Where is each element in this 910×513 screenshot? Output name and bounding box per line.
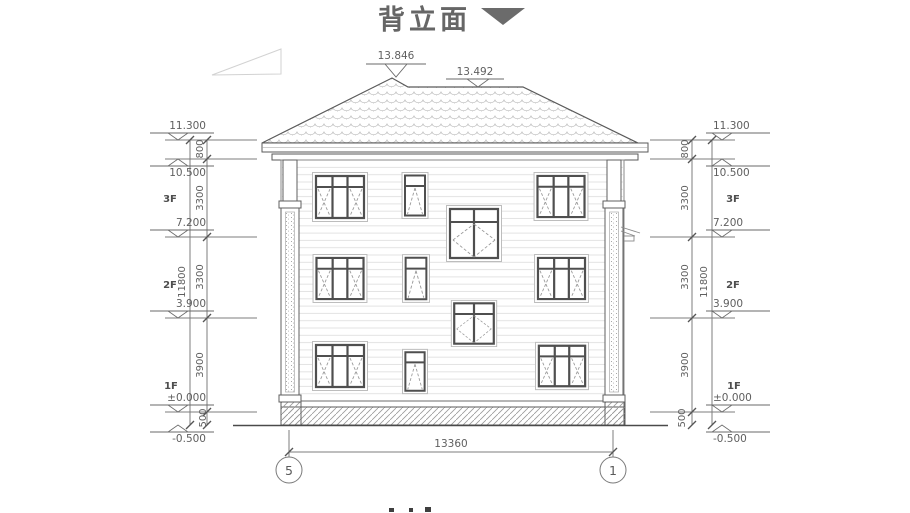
dim-800-right: 800 — [679, 129, 691, 169]
roof-peak-elevation: 13.846 — [366, 50, 426, 62]
elevation-11300-right: 11.300 — [713, 120, 773, 132]
elevation-7200-left: 7.200 — [146, 217, 206, 229]
window-1f-narrow — [402, 349, 427, 393]
window-2f-left — [313, 254, 367, 302]
window-2f-right — [535, 254, 589, 302]
dim-800-left: 800 — [194, 129, 206, 169]
floor-label-1f-left: 1F — [159, 381, 183, 393]
window-3f-left — [313, 173, 368, 222]
grid-bubble-1-label: 1 — [600, 463, 626, 477]
floor-label-3f-left: 3F — [158, 194, 182, 206]
window-3f-right — [534, 172, 588, 220]
title-arrow-icon — [481, 8, 525, 25]
floor-label-3f-right: 3F — [721, 194, 745, 206]
window-stair-upper — [447, 206, 502, 262]
window-2f-narrow — [403, 255, 430, 303]
dim-3300a-right: 3300 — [679, 178, 691, 218]
window-3f-narrow — [402, 173, 428, 219]
dim-13360: 13360 — [421, 438, 481, 450]
dim-11800-left: 11800 — [176, 262, 188, 302]
dim-500-right: 500 — [676, 398, 688, 438]
window-stair-lower — [451, 300, 496, 346]
window-1f-left — [313, 342, 368, 391]
dim-3300b-left: 3300 — [194, 257, 206, 297]
elevation-0000-right: ±0.000 — [713, 392, 773, 404]
dim-3300b-right: 3300 — [679, 257, 691, 297]
dim-3900-right: 3900 — [679, 345, 691, 385]
elevation-10500-right: 10.500 — [713, 167, 773, 179]
dim-11800-right: 11800 — [698, 262, 710, 302]
elevation-3900-right: 3.900 — [713, 298, 773, 310]
floor-label-2f-right: 2F — [721, 280, 745, 292]
dim-3900-left: 3900 — [194, 345, 206, 385]
eave-trim — [272, 154, 638, 160]
window-1f-right — [535, 342, 588, 389]
roof-slope-indicator — [212, 49, 281, 75]
hip-roof — [262, 78, 638, 143]
floor-label-1f-right: 1F — [722, 381, 746, 393]
elevation-7200-right: 7.200 — [713, 217, 773, 229]
elevation-m0500-right: -0.500 — [713, 433, 773, 445]
plinth-band — [281, 407, 624, 425]
grid-bubble-5-label: 5 — [276, 463, 302, 477]
dim-500-left: 500 — [197, 398, 209, 438]
roof-ridge-elevation: 13.492 — [446, 66, 504, 78]
dim-3300a-left: 3300 — [194, 178, 206, 218]
drawing-title: 背立面 — [378, 0, 471, 37]
elevation-drawing-canvas: 背立面 13.846 13.492 11.300 10.500 7.200 3.… — [0, 0, 910, 513]
base-trim — [281, 401, 624, 407]
